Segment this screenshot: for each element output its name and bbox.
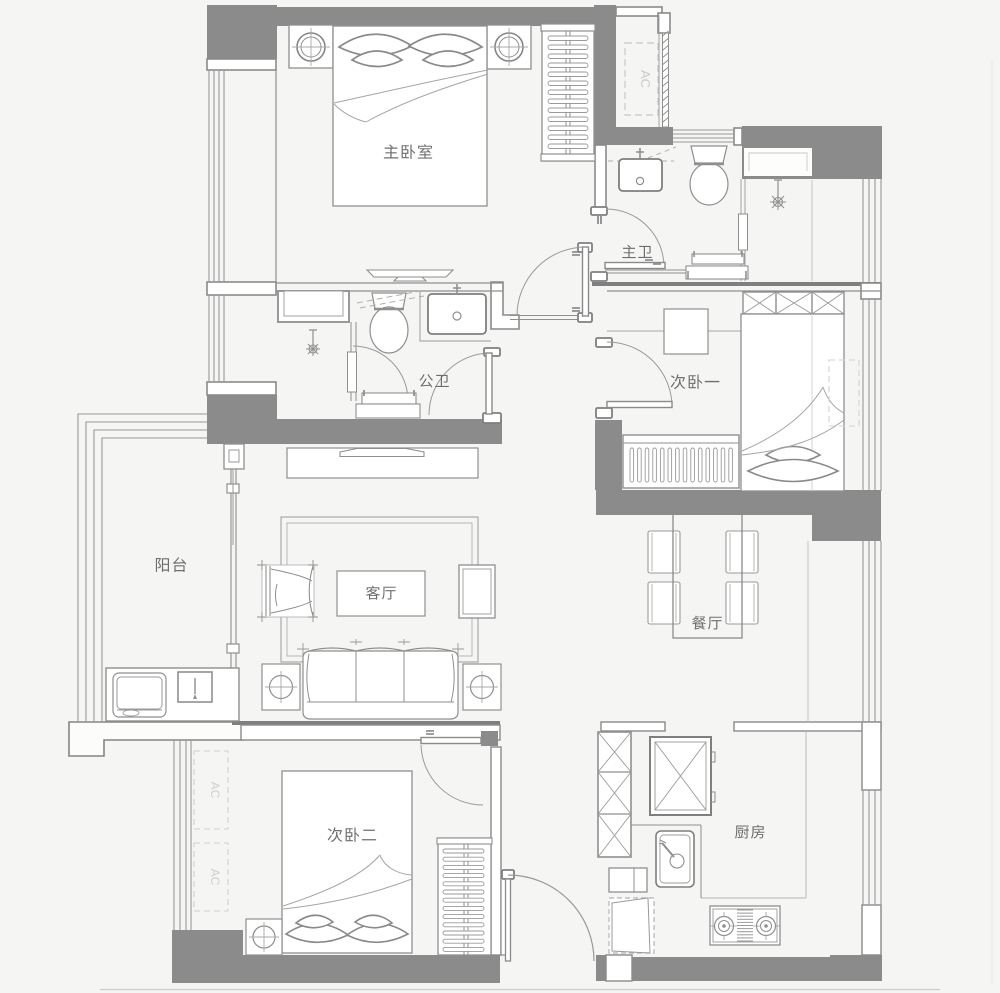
svg-text:AC: AC <box>208 869 222 886</box>
svg-text:AC: AC <box>208 782 222 799</box>
svg-text:AC: AC <box>638 70 653 88</box>
